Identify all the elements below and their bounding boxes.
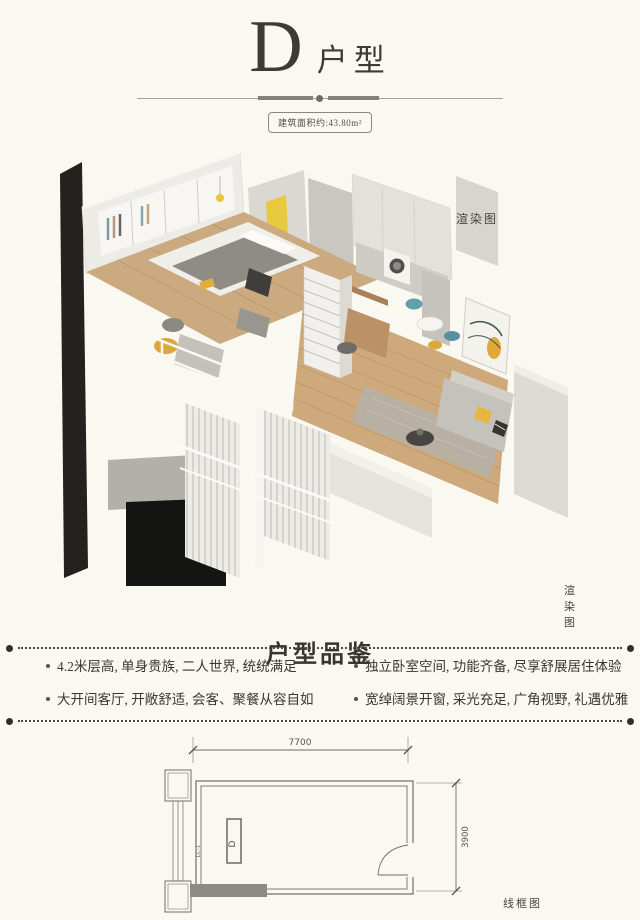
plan-suffix: 户型 bbox=[317, 35, 391, 80]
feature-text: 宽绰阔景开窗, 采光充足, 广角视野, 礼遇优雅 bbox=[365, 692, 628, 708]
dotted-line bbox=[18, 647, 622, 649]
bullet-icon bbox=[46, 697, 50, 701]
dim-height-label: 3900 bbox=[461, 826, 471, 848]
wireframe-label: 线框图 bbox=[503, 895, 542, 911]
page-title: D 户型 bbox=[0, 10, 640, 84]
feature-item: 宽绰阔景开窗, 采光充足, 广角视野, 礼遇优雅 bbox=[354, 692, 630, 708]
dotted-rule-top bbox=[6, 645, 634, 652]
divider-bar-right bbox=[328, 96, 379, 100]
page: D 户型 建筑面积约:43.80m² bbox=[0, 0, 640, 920]
dotted-line bbox=[18, 720, 622, 722]
wireframe-area: 7700 D LC-1 bbox=[140, 733, 520, 918]
feature-text: 大开间客厅, 开敞舒适, 会客、聚餐从容自如 bbox=[57, 692, 314, 708]
dotted-rule-bottom bbox=[6, 718, 634, 725]
render-label-top: 渲染图 bbox=[456, 210, 498, 227]
title-divider bbox=[137, 95, 503, 104]
window-code-label: LC-1 bbox=[196, 845, 202, 857]
bullet-icon bbox=[354, 664, 358, 668]
render-illustration bbox=[52, 148, 587, 616]
plan-letter: D bbox=[249, 10, 302, 84]
bullet-icon bbox=[354, 697, 358, 701]
unit-letter-label: D bbox=[228, 840, 238, 847]
feature-item: 独立卧室空间, 功能齐备, 尽享舒展居住体验 bbox=[354, 659, 630, 675]
dim-width-label: 7700 bbox=[289, 738, 312, 748]
feature-item: 大开间客厅, 开敞舒适, 会客、聚餐从容自如 bbox=[46, 692, 354, 708]
divider-bar-left bbox=[258, 96, 313, 100]
wireframe-plan: 7700 D LC-1 bbox=[140, 733, 520, 918]
feature-text: 独立卧室空间, 功能齐备, 尽享舒展居住体验 bbox=[365, 659, 622, 675]
render-area: 渲染图 渲染图 bbox=[52, 148, 587, 616]
features-list: 4.2米层高, 单身贵族, 二人世界, 统统满足 独立卧室空间, 功能齐备, 尽… bbox=[46, 659, 630, 707]
divider-dot-icon bbox=[316, 95, 323, 102]
render-label-bottom: 渲染图 bbox=[564, 582, 587, 630]
feature-text: 4.2米层高, 单身贵族, 二人世界, 统统满足 bbox=[57, 659, 297, 675]
area-badge: 建筑面积约:43.80m² bbox=[268, 112, 372, 133]
bullet-icon bbox=[46, 664, 50, 668]
feature-item: 4.2米层高, 单身贵族, 二人世界, 统统满足 bbox=[46, 659, 354, 675]
